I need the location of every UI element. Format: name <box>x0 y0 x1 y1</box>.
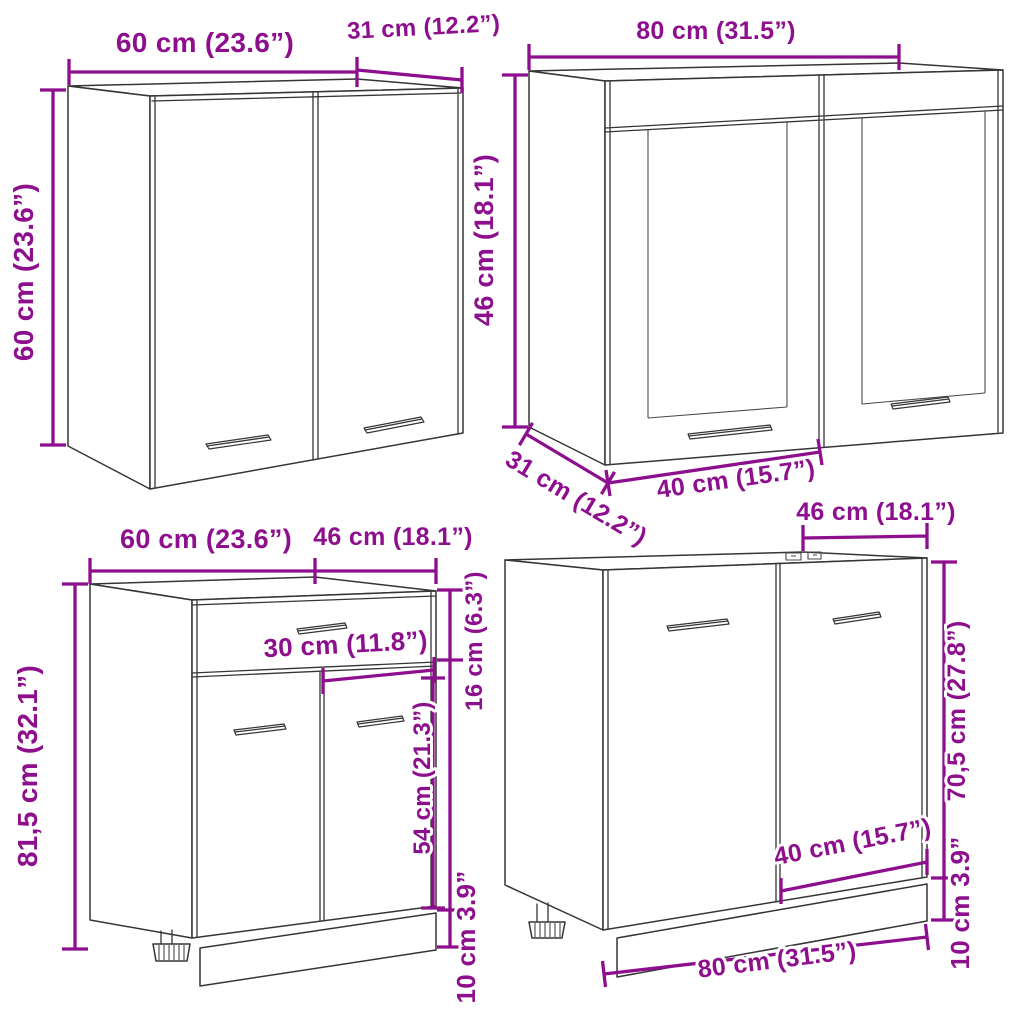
plinth-height-label: 10 cm 3.9” <box>451 870 481 1003</box>
sink-cabinet-depth-label: 46 cm (18.1”) <box>796 498 956 526</box>
glass-cabinet-width-label: 80 cm (31.5”) <box>636 17 796 45</box>
glass-cabinet-height-label: 46 cm (18.1”) <box>469 154 499 326</box>
sink-plinth-height-label: 10 cm 3.9” <box>945 836 975 969</box>
glass-cabinet-drawing <box>529 63 1003 465</box>
sink-cabinet-left-side <box>505 560 603 930</box>
wall-cabinet-depth-label: 31 cm (12.2”) <box>346 10 501 45</box>
wall-cabinet-left-side <box>68 86 150 489</box>
wall-cabinet-height-label: 60 cm (23.6”) <box>8 183 39 361</box>
base-cabinet-width-label: 60 cm (23.6”) <box>120 524 292 554</box>
drawer-front-height-label: 16 cm (6.3”) <box>461 571 488 711</box>
glass-cabinet-door-width-label: 40 cm (15.7”) <box>655 454 817 504</box>
sink-cabinet-drawing <box>505 552 927 977</box>
height-dimension-line <box>40 90 66 445</box>
height-dimension-line <box>62 584 88 949</box>
wall-cabinet-width-label: 60 cm (23.6”) <box>116 27 294 58</box>
glass-cabinet-left-side <box>529 71 605 465</box>
base-cabinet-height-label: 81,5 cm (32.1”) <box>12 665 43 867</box>
wall-cabinet-drawing <box>68 79 463 489</box>
height-dimension-line <box>502 75 528 427</box>
base-cabinet-left-side <box>90 584 192 938</box>
wall-cabinet-front-face <box>150 88 463 489</box>
cabinet-dimension-diagram: 60 cm (23.6”) 31 cm (12.2”) 60 cm (23.6”… <box>0 0 1024 1024</box>
door-height-label: 54 cm (21.3”) <box>409 701 436 854</box>
sink-cabinet-height-label: 70,5 cm (27.8”) <box>943 621 971 802</box>
base-cabinet-depth-label: 46 cm (18.1”) <box>313 523 473 551</box>
diagram-svg: 60 cm (23.6”) 31 cm (12.2”) 60 cm (23.6”… <box>0 0 1024 1024</box>
depth-dimension-line <box>803 523 927 551</box>
